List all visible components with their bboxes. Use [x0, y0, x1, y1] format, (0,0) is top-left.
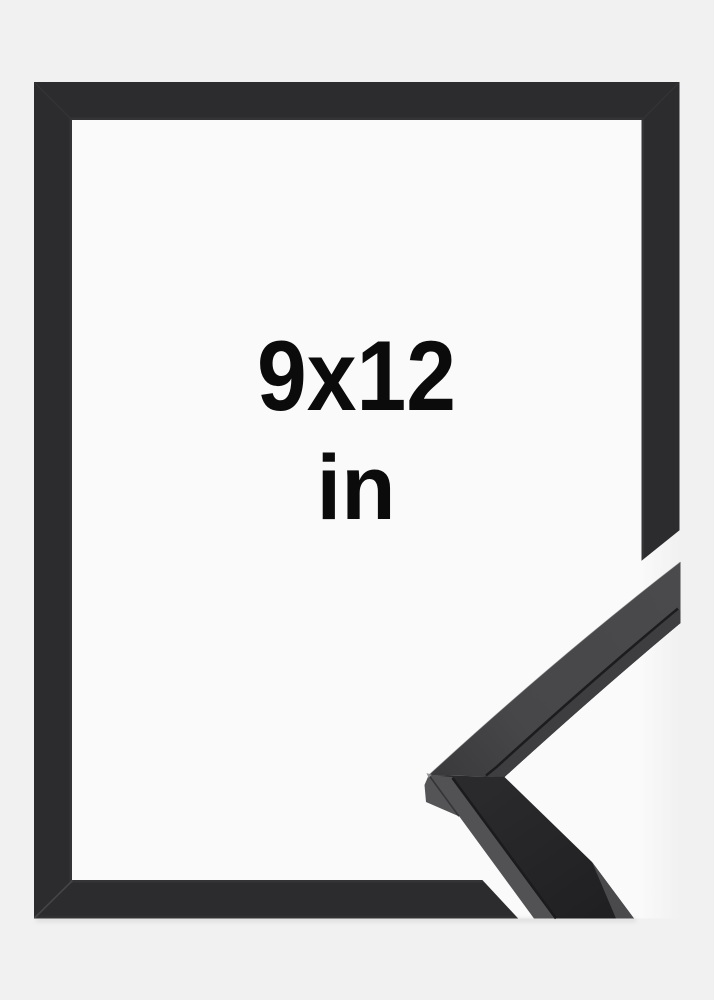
svg-text:in: in [317, 437, 396, 539]
svg-text:9x12: 9x12 [257, 320, 456, 431]
